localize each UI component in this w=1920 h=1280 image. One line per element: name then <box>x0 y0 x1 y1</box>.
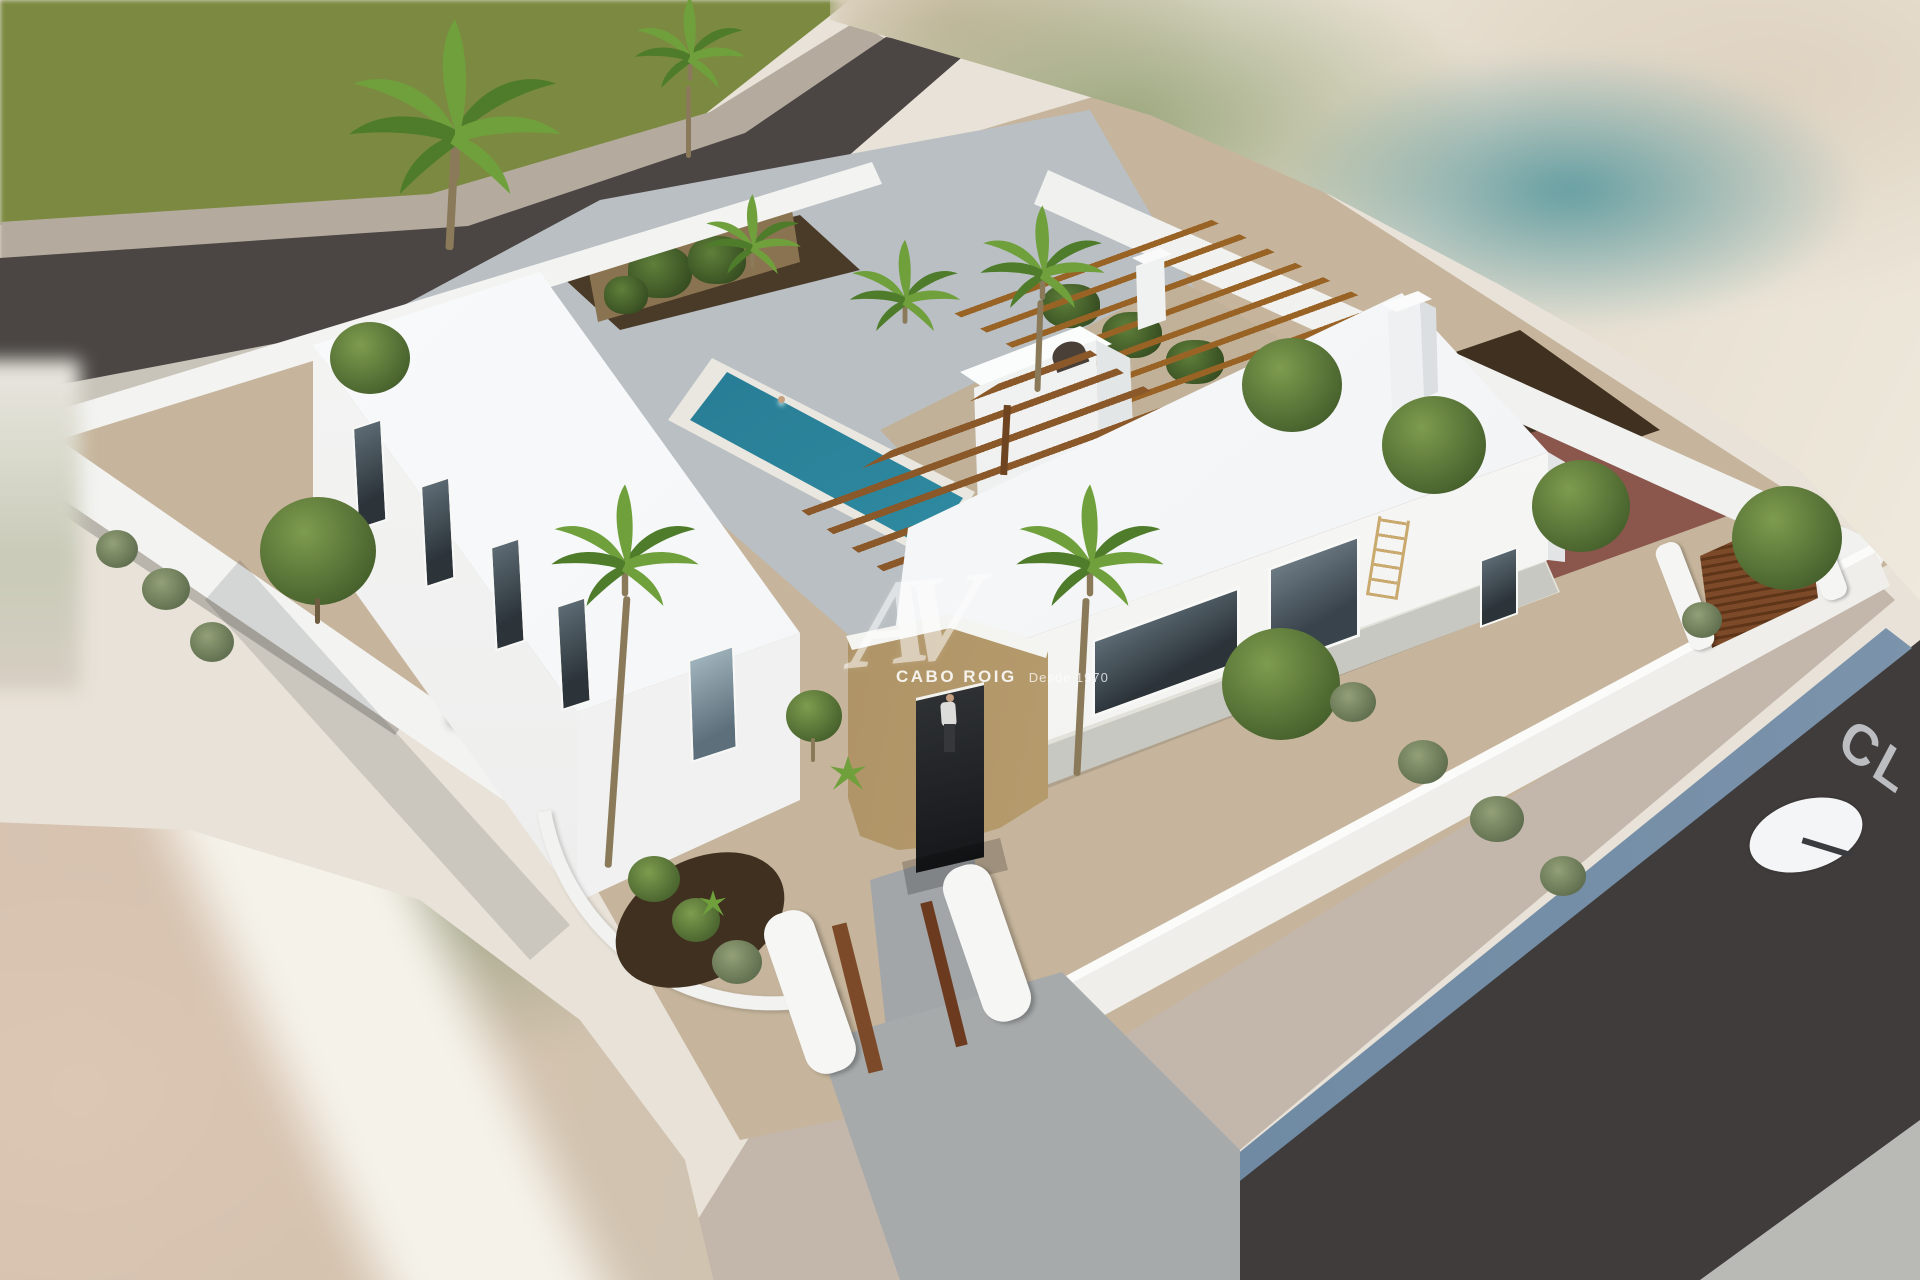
render-canvas: CL <box>0 0 1920 1280</box>
bush <box>190 622 234 662</box>
lavender-bush <box>1540 856 1586 896</box>
bush <box>1682 602 1722 638</box>
palm-tree <box>545 478 705 638</box>
tree <box>330 322 410 394</box>
tree-trunk <box>315 598 320 624</box>
topiary-tree <box>786 690 842 742</box>
feature-plant <box>604 276 648 314</box>
tree <box>1382 396 1486 494</box>
lavender-bush <box>1330 682 1376 722</box>
lavender-bush <box>1470 796 1524 842</box>
planter-shrub <box>712 940 762 984</box>
tree-trunk <box>811 738 815 762</box>
palm-tree <box>1010 478 1170 638</box>
tree <box>1532 460 1630 552</box>
bush <box>96 530 138 568</box>
window <box>688 645 738 763</box>
palm-tree <box>700 190 805 295</box>
window <box>1480 546 1518 628</box>
palm-tree <box>845 235 965 355</box>
tree <box>1732 486 1842 590</box>
bush <box>142 568 190 610</box>
person-body <box>940 702 957 727</box>
person-legs <box>944 724 955 752</box>
tree <box>1222 628 1340 740</box>
window <box>490 537 526 651</box>
planter-shrub <box>628 856 680 902</box>
swimmer <box>778 396 785 403</box>
palm-trunk <box>686 86 691 158</box>
olive-tree <box>260 497 376 605</box>
window <box>420 476 455 588</box>
tree <box>1242 338 1342 432</box>
lavender-bush <box>1398 740 1448 784</box>
